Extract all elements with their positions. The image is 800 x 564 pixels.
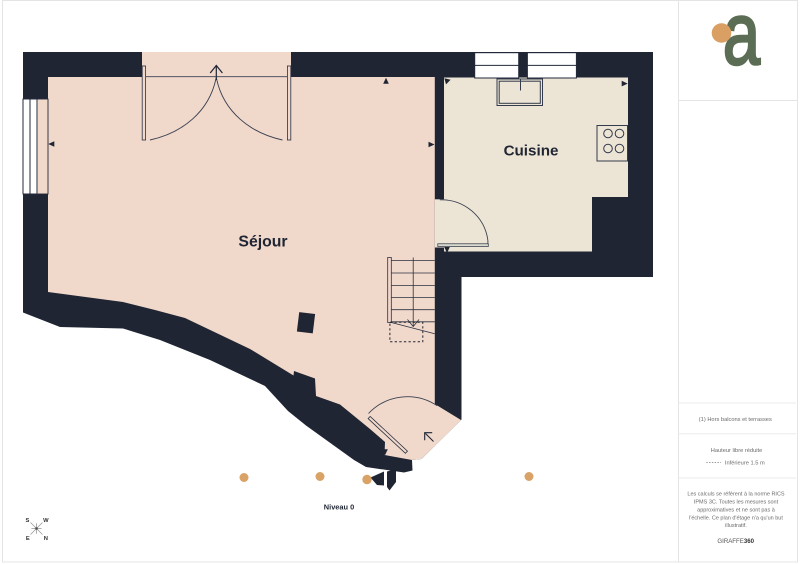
svg-text:Les calculs se réfèrent à la n: Les calculs se réfèrent à la norme RICS bbox=[687, 492, 785, 498]
svg-text:S: S bbox=[25, 518, 29, 524]
svg-text:illustratif.: illustratif. bbox=[725, 523, 747, 529]
svg-text:approximatives et ne sont pas: approximatives et ne sont pas à bbox=[697, 507, 776, 513]
svg-text:E: E bbox=[26, 536, 30, 542]
svg-text:IPMS 3C. Toutes les mesures so: IPMS 3C. Toutes les mesures sont bbox=[694, 500, 779, 506]
svg-text:GIRAFFE360: GIRAFFE360 bbox=[717, 538, 754, 545]
svg-text:W: W bbox=[43, 518, 49, 524]
svg-text:N: N bbox=[44, 536, 48, 542]
svg-text:Niveau 0: Niveau 0 bbox=[324, 502, 354, 511]
svg-text:Hauteur libre réduite: Hauteur libre réduite bbox=[711, 448, 763, 454]
svg-text:Inférieure 1.5 m: Inférieure 1.5 m bbox=[725, 460, 765, 466]
svg-text:Séjour: Séjour bbox=[238, 234, 287, 251]
svg-text:Cuisine: Cuisine bbox=[504, 143, 559, 160]
svg-text:(1) Hors balcons et terrasses: (1) Hors balcons et terrasses bbox=[699, 417, 772, 423]
svg-text:a: a bbox=[723, 0, 761, 83]
svg-text:l'échelle. Ce plan d'étage n'a: l'échelle. Ce plan d'étage n'a qu'un but bbox=[689, 515, 783, 521]
